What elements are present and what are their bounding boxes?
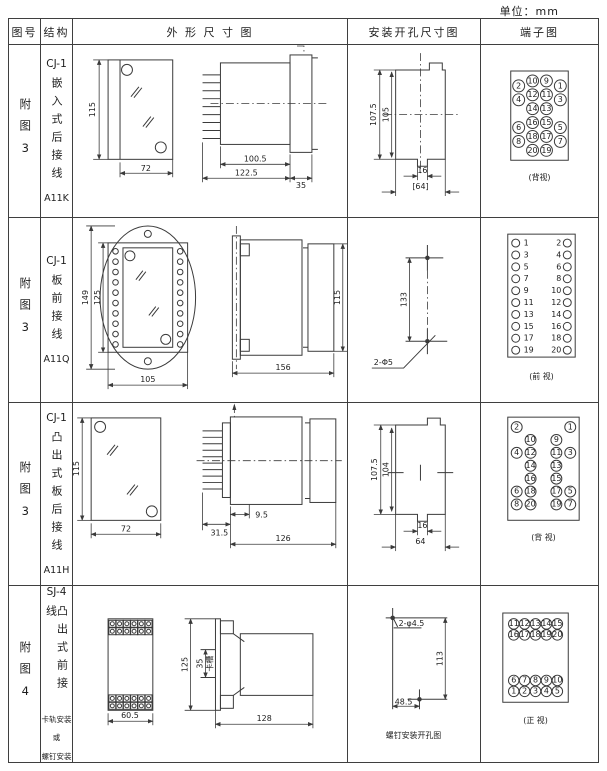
- svg-text:11: 11: [509, 619, 519, 628]
- svg-text:6: 6: [516, 123, 521, 132]
- dimension-lines: [93, 60, 312, 182]
- install-diagram-1: 107.5 105 16 [64]: [348, 45, 481, 218]
- svg-text:2: 2: [516, 81, 521, 90]
- dim-label-h3: 115: [333, 290, 342, 305]
- svg-text:19: 19: [541, 146, 551, 155]
- svg-text:10: 10: [528, 76, 538, 85]
- terminal-svg-4: 1112131415161718192067891012345 (正 视): [481, 586, 598, 762]
- install-svg-4: 2-φ4.5 113 48.5 螺钉安装开孔图: [348, 586, 480, 762]
- terminal-box: [508, 234, 575, 357]
- dimension-lines: [374, 425, 459, 551]
- dim-label-depth: 126: [276, 534, 291, 543]
- terminal-diagram-1: 1091211141316151817201921436587 (背视): [481, 45, 598, 218]
- svg-text:13: 13: [541, 104, 551, 113]
- slot-name-label: 卡槽: [204, 656, 214, 672]
- unit-label: 单位：mm: [500, 3, 559, 19]
- svg-text:12: 12: [528, 90, 538, 99]
- svg-text:11: 11: [541, 90, 551, 99]
- dim-label-total: 122.5: [235, 169, 258, 178]
- structure-cell-3: CJ-1 凸出式板后接线 A11H: [41, 403, 73, 586]
- code-1: A11K: [44, 193, 69, 204]
- svg-text:9: 9: [544, 676, 549, 685]
- center-lines: [384, 53, 459, 176]
- dim-label-flange: 35: [296, 181, 306, 190]
- svg-text:8: 8: [533, 676, 538, 685]
- svg-text:2: 2: [514, 422, 519, 431]
- svg-text:6: 6: [511, 676, 516, 685]
- svg-text:1: 1: [558, 81, 563, 90]
- dim-label-h: 113: [435, 651, 444, 666]
- dim-label-w: 72: [121, 524, 131, 533]
- svg-text:2: 2: [556, 239, 561, 248]
- mounting-note-line-3: 螺钉安装: [42, 752, 72, 763]
- svg-text:10: 10: [526, 435, 536, 444]
- outline-diagram-1: 115 72 100.5 122.5 35: [73, 45, 348, 218]
- header-outline: 外 形 尺 寸 图: [73, 19, 348, 45]
- header-structure: 结构: [41, 19, 73, 45]
- svg-text:18: 18: [526, 487, 536, 496]
- terminal-circles: 2110943121114131615651817872019: [511, 422, 575, 510]
- dim-label-inner-h: 104: [382, 462, 391, 477]
- svg-text:17: 17: [551, 487, 561, 496]
- outline-diagram-3: 115 72 9.5 31.5 126: [73, 403, 348, 586]
- svg-text:9: 9: [524, 286, 529, 295]
- terminal-diagram-4: 1112131415161718192067891012345 (正 视): [481, 586, 598, 762]
- front-view-lines: [91, 418, 161, 520]
- terminal-caption: (正 视): [523, 715, 548, 725]
- model-3: CJ-1: [46, 412, 67, 424]
- dim-label-h: 115: [73, 461, 81, 476]
- svg-text:16: 16: [509, 630, 519, 639]
- svg-text:20: 20: [526, 500, 536, 509]
- terminal-caption: (背 视): [531, 532, 556, 542]
- svg-text:8: 8: [514, 500, 519, 509]
- outline-svg-4: 60.5 125 35 卡槽 128: [73, 586, 347, 762]
- top-hole: [425, 256, 430, 261]
- outline-diagram-4: 60.5 125 35 卡槽 128: [73, 586, 348, 762]
- dim-label-width: [64]: [412, 182, 428, 191]
- svg-text:12: 12: [520, 619, 530, 628]
- mounting-3: 凸出式板后接线: [51, 431, 62, 557]
- side-view-lines: [201, 619, 313, 710]
- figure-no-cell-2: 附图3: [9, 218, 41, 403]
- dim-label-slot: 35: [196, 659, 205, 669]
- dim-label-w: 60.5: [121, 711, 139, 720]
- structure-cell-1: CJ-1 嵌入式后接线 A11K: [41, 45, 73, 218]
- svg-text:17: 17: [524, 334, 534, 343]
- dim-label-w: 48.5: [395, 697, 413, 706]
- svg-text:4: 4: [514, 448, 519, 457]
- figure-no-4: 附图4: [19, 641, 31, 708]
- install-diagram-3: 107.5 104 16 64: [348, 403, 481, 586]
- code-2: A11Q: [43, 354, 69, 365]
- svg-text:1: 1: [524, 239, 529, 248]
- svg-text:10: 10: [551, 286, 561, 295]
- svg-text:6: 6: [556, 262, 561, 271]
- svg-text:6: 6: [514, 487, 519, 496]
- svg-text:15: 15: [551, 474, 561, 483]
- svg-text:14: 14: [528, 104, 538, 113]
- svg-text:5: 5: [555, 686, 560, 695]
- dimension-table: 图号 结构 外 形 尺 寸 图 安装开孔尺寸图 端子图 附图3 CJ-1 嵌入式…: [8, 18, 599, 763]
- install-svg-2: 133 2-Φ5: [348, 218, 480, 402]
- terminal-diagram-3: 2110943121114131615651817872019 (背 视): [481, 403, 598, 586]
- dimension-lines: [374, 70, 459, 196]
- svg-text:3: 3: [568, 448, 573, 457]
- outline-svg-1: 115 72 100.5 122.5 35: [73, 45, 347, 217]
- terminal-circles: 1091211141316151817201921436587: [513, 75, 567, 156]
- front-terminal-blocks: [109, 620, 152, 709]
- svg-text:3: 3: [524, 250, 529, 259]
- svg-text:17: 17: [520, 630, 530, 639]
- svg-text:1: 1: [511, 686, 516, 695]
- svg-text:13: 13: [551, 461, 561, 470]
- install-diagram-2: 133 2-Φ5: [348, 218, 481, 403]
- svg-text:5: 5: [558, 123, 563, 132]
- dim-label-slot: 16: [417, 521, 427, 530]
- mounting-2: 板前接线: [51, 274, 62, 346]
- svg-text:15: 15: [524, 322, 534, 331]
- svg-text:11: 11: [551, 448, 561, 457]
- outline-svg-3: 115 72 9.5 31.5 126: [73, 403, 347, 585]
- svg-text:3: 3: [533, 686, 538, 695]
- install-svg-3: 107.5 104 16 64: [348, 403, 480, 585]
- svg-text:3: 3: [558, 95, 563, 104]
- svg-text:19: 19: [524, 346, 534, 355]
- svg-text:17: 17: [541, 132, 551, 141]
- svg-text:7: 7: [568, 500, 573, 509]
- svg-text:14: 14: [541, 619, 551, 628]
- dim-label-depth: 128: [257, 714, 272, 723]
- svg-text:2: 2: [522, 686, 527, 695]
- install-diagram-4: 2-φ4.5 113 48.5 螺钉安装开孔图: [348, 586, 481, 762]
- svg-text:18: 18: [528, 132, 538, 141]
- svg-text:10: 10: [552, 676, 562, 685]
- mounting-4: 凸出式前接线: [46, 605, 68, 707]
- svg-text:5: 5: [568, 487, 573, 496]
- mounting-note-line-1: 卡轨安装: [42, 715, 72, 726]
- dim-label-panel: 9.5: [255, 510, 268, 519]
- svg-text:14: 14: [526, 461, 536, 470]
- dim-label-h: 133: [400, 292, 409, 307]
- svg-text:7: 7: [522, 676, 527, 685]
- dim-label-inner-h: 105: [382, 107, 391, 122]
- dim-label-outer-h: 107.5: [369, 103, 378, 126]
- model-1: CJ-1: [46, 58, 67, 70]
- terminal-caption: (前 视): [529, 371, 554, 381]
- model-4: SJ-4: [47, 586, 67, 598]
- center-marks: [388, 465, 454, 481]
- dim-label-body: 100.5: [244, 154, 267, 163]
- svg-text:20: 20: [528, 146, 538, 155]
- svg-text:16: 16: [526, 474, 536, 483]
- install-caption: 螺钉安装开孔图: [386, 730, 442, 740]
- terminal-diagram-2: 1234567891011121314151617181920 (前 视): [481, 218, 598, 403]
- figure-no-3: 附图3: [19, 461, 31, 528]
- svg-text:7: 7: [558, 137, 563, 146]
- svg-text:13: 13: [530, 619, 540, 628]
- dim-label-width: 72: [141, 164, 151, 173]
- model-2: CJ-1: [46, 255, 67, 267]
- phantom-line: [297, 46, 304, 55]
- svg-text:20: 20: [552, 630, 562, 639]
- figure-no-cell-3: 附图3: [9, 403, 41, 586]
- outline-svg-2: 149 125 105 156 115: [73, 218, 347, 402]
- dim-label-slot: 16: [417, 166, 427, 175]
- terminal-svg-2: 1234567891011121314151617181920 (前 视): [481, 218, 598, 402]
- svg-text:12: 12: [551, 298, 561, 307]
- side-view-lines: [232, 236, 333, 359]
- terminal-circles: 1234567891011121314151617181920: [512, 239, 571, 355]
- dim-label-outer-h: 107.5: [370, 458, 379, 481]
- mounting-1: 嵌入式后接线: [51, 77, 62, 185]
- header-terminal: 端子图: [481, 19, 598, 45]
- install-svg-1: 107.5 105 16 [64]: [348, 45, 480, 217]
- terminal-caption: (背视): [528, 172, 550, 182]
- structure-cell-4: SJ-4 凸出式前接线 卡轨安装 或 螺钉安装: [41, 586, 73, 762]
- dim-label-h1: 149: [81, 290, 90, 305]
- svg-text:9: 9: [554, 435, 559, 444]
- dim-label-pin: 31.5: [210, 528, 228, 537]
- dim-label-height: 115: [88, 102, 97, 117]
- figure-no-2: 附图3: [19, 277, 31, 344]
- svg-text:4: 4: [556, 250, 561, 259]
- svg-text:20: 20: [551, 346, 561, 355]
- mounting-note-line-2: 或: [53, 733, 61, 744]
- figure-no-1: 附图3: [19, 98, 31, 165]
- dim-label-h2: 125: [93, 290, 102, 305]
- top-hole: [390, 616, 395, 621]
- svg-text:1: 1: [568, 422, 573, 431]
- front-view-lines: [108, 60, 173, 159]
- phantom-arrow: [232, 403, 236, 409]
- svg-text:9: 9: [544, 76, 549, 85]
- terminal-circles: 1112131415161718192067891012345: [508, 619, 562, 697]
- front-view-lines: [100, 226, 195, 369]
- svg-text:12: 12: [526, 448, 536, 457]
- svg-text:13: 13: [524, 310, 534, 319]
- figure-no-cell-1: 附图3: [9, 45, 41, 218]
- hole-spec-label: 2-Φ5: [374, 358, 393, 367]
- svg-text:7: 7: [524, 274, 529, 283]
- bottom-hole: [425, 339, 430, 344]
- svg-text:4: 4: [516, 95, 521, 104]
- dim-label-width: 64: [415, 537, 425, 546]
- svg-text:16: 16: [528, 118, 538, 127]
- code-3: A11H: [44, 565, 70, 576]
- dim-label-w: 105: [140, 375, 155, 384]
- structure-cell-2: CJ-1 板前接线 A11Q: [41, 218, 73, 403]
- dim-label-depth: 156: [276, 363, 291, 372]
- header-figure: 图号: [9, 19, 41, 45]
- svg-text:15: 15: [541, 118, 551, 127]
- bottom-hole: [417, 697, 422, 702]
- terminal-svg-3: 2110943121114131615651817872019 (背 视): [481, 403, 598, 585]
- svg-text:5: 5: [524, 262, 529, 271]
- svg-text:15: 15: [552, 619, 562, 628]
- header-install: 安装开孔尺寸图: [348, 19, 481, 45]
- svg-text:4: 4: [544, 686, 549, 695]
- outline-diagram-2: 149 125 105 156 115: [73, 218, 348, 403]
- svg-text:14: 14: [551, 310, 561, 319]
- svg-text:11: 11: [524, 298, 534, 307]
- svg-text:19: 19: [541, 630, 551, 639]
- svg-text:8: 8: [556, 274, 561, 283]
- svg-text:18: 18: [551, 334, 561, 343]
- svg-text:16: 16: [551, 322, 561, 331]
- terminal-svg-1: 1091211141316151817201921436587 (背视): [481, 45, 598, 217]
- svg-text:8: 8: [516, 137, 521, 146]
- svg-text:19: 19: [551, 500, 561, 509]
- figure-no-cell-4: 附图4: [9, 586, 41, 762]
- dim-label-h: 125: [181, 657, 190, 672]
- svg-text:18: 18: [530, 630, 540, 639]
- hole-spec-label: 2-φ4.5: [399, 619, 425, 628]
